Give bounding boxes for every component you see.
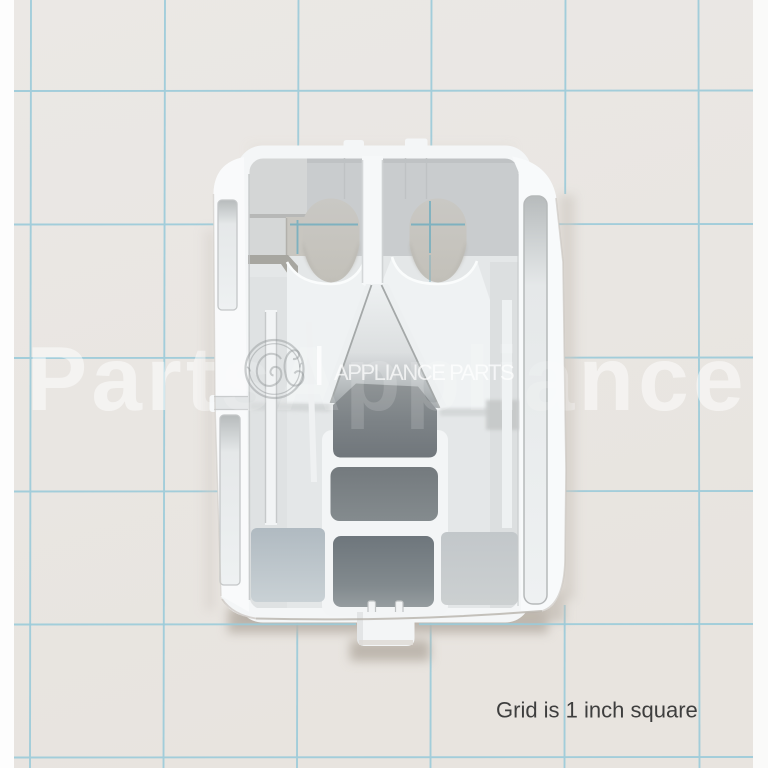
- svg-text:Grid is 1 inch square: Grid is 1 inch square: [496, 698, 698, 723]
- svg-text:APPLIANCE PARTS: APPLIANCE PARTS: [334, 360, 514, 385]
